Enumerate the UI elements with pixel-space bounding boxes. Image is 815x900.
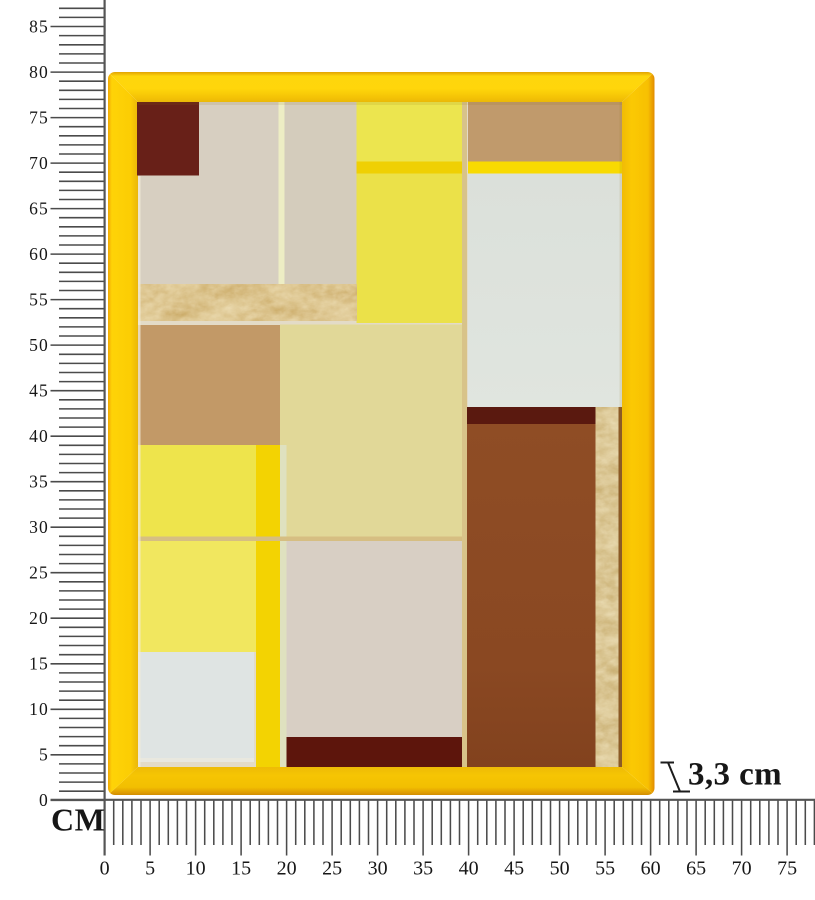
svg-text:35: 35 <box>29 472 49 492</box>
svg-text:15: 15 <box>29 654 49 674</box>
svg-text:0: 0 <box>100 858 110 880</box>
svg-text:30: 30 <box>29 517 49 537</box>
svg-text:45: 45 <box>29 381 49 401</box>
svg-text:50: 50 <box>29 335 49 355</box>
svg-text:65: 65 <box>29 198 49 218</box>
svg-text:25: 25 <box>29 563 49 583</box>
svg-text:25: 25 <box>322 858 342 880</box>
svg-text:30: 30 <box>368 858 388 880</box>
svg-text:40: 40 <box>459 858 479 880</box>
svg-text:40: 40 <box>29 426 49 446</box>
svg-text:CM: CM <box>51 802 105 838</box>
svg-text:80: 80 <box>29 62 49 82</box>
svg-text:10: 10 <box>29 699 49 719</box>
svg-text:0: 0 <box>39 790 49 810</box>
svg-text:55: 55 <box>595 858 615 880</box>
svg-text:75: 75 <box>29 107 49 127</box>
svg-text:85: 85 <box>29 16 49 36</box>
svg-text:70: 70 <box>732 858 752 880</box>
svg-text:15: 15 <box>231 858 251 880</box>
svg-text:65: 65 <box>686 858 706 880</box>
svg-text:20: 20 <box>277 858 297 880</box>
svg-text:60: 60 <box>29 244 49 264</box>
svg-text:5: 5 <box>39 745 49 765</box>
svg-text:50: 50 <box>550 858 570 880</box>
svg-text:5: 5 <box>145 858 155 880</box>
svg-text:55: 55 <box>29 289 49 309</box>
svg-text:10: 10 <box>186 858 206 880</box>
svg-text:45: 45 <box>504 858 524 880</box>
svg-text:75: 75 <box>777 858 797 880</box>
svg-text:3,3 cm: 3,3 cm <box>688 757 782 793</box>
svg-text:20: 20 <box>29 608 49 628</box>
svg-text:70: 70 <box>29 153 49 173</box>
svg-text:60: 60 <box>641 858 661 880</box>
svg-text:35: 35 <box>413 858 433 880</box>
